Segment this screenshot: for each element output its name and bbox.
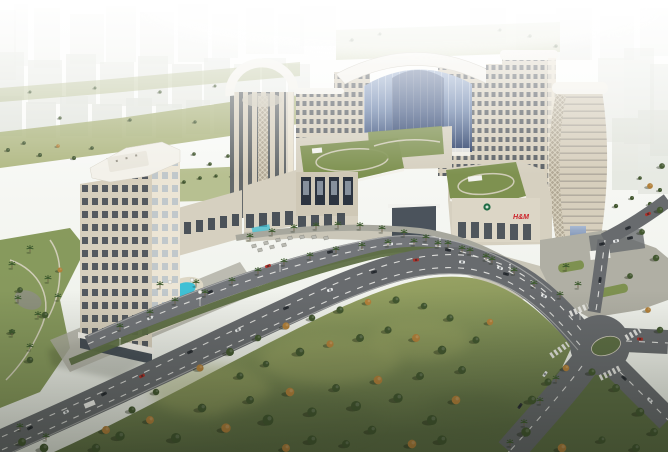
aerial-render-image: H&M xyxy=(0,0,668,452)
car xyxy=(459,260,465,263)
hm-storefront-wall: H&M xyxy=(452,198,540,242)
light-head xyxy=(279,264,281,266)
render-canvas: H&M xyxy=(0,0,668,452)
light-head xyxy=(439,238,441,240)
banner-figure xyxy=(331,181,337,195)
banner-figure xyxy=(303,181,309,195)
pool-umbrella xyxy=(190,278,194,282)
pool-umbrella xyxy=(168,280,172,284)
light-head xyxy=(509,264,511,266)
hm-sign-text: H&M xyxy=(513,214,529,221)
dusk-vignette xyxy=(0,290,668,452)
banner-figure xyxy=(345,181,351,195)
banner-figure xyxy=(317,181,323,195)
